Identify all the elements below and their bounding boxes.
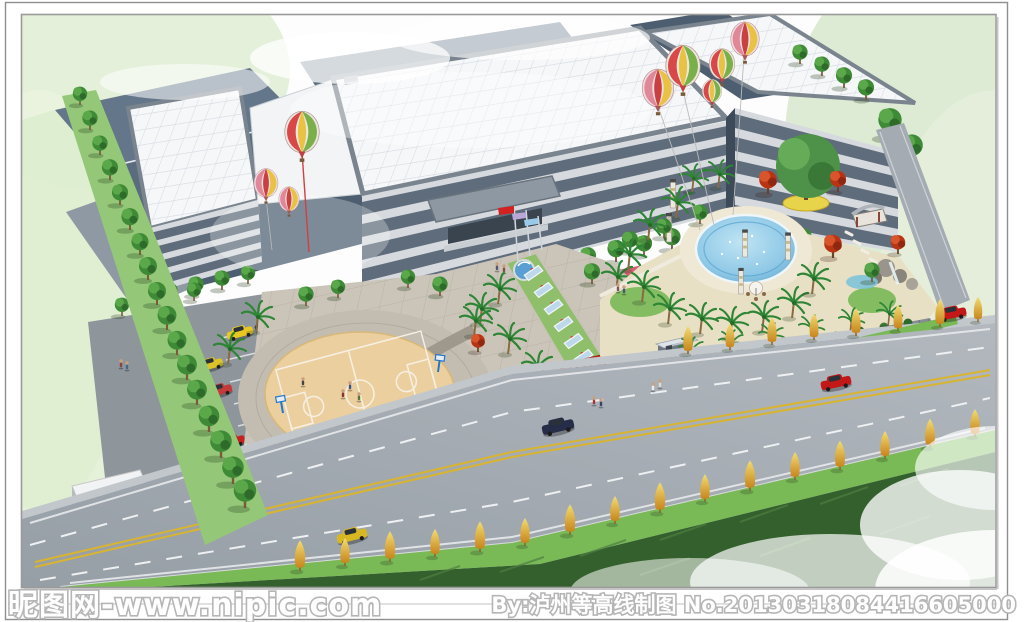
watermark-right: By:泸州等高线制图 No.20130318084416605000: [491, 593, 1016, 617]
watermark-left: 昵图网-www.nipic.com: [8, 588, 382, 622]
rendering-page: 昵图网-www.nipic.com By:泸州等高线制图 No.20130318…: [0, 0, 1024, 622]
rendering-canvas: 昵图网-www.nipic.com By:泸州等高线制图 No.20130318…: [0, 0, 1024, 622]
watermark-bar: 昵图网-www.nipic.com By:泸州等高线制图 No.20130318…: [8, 588, 1016, 622]
